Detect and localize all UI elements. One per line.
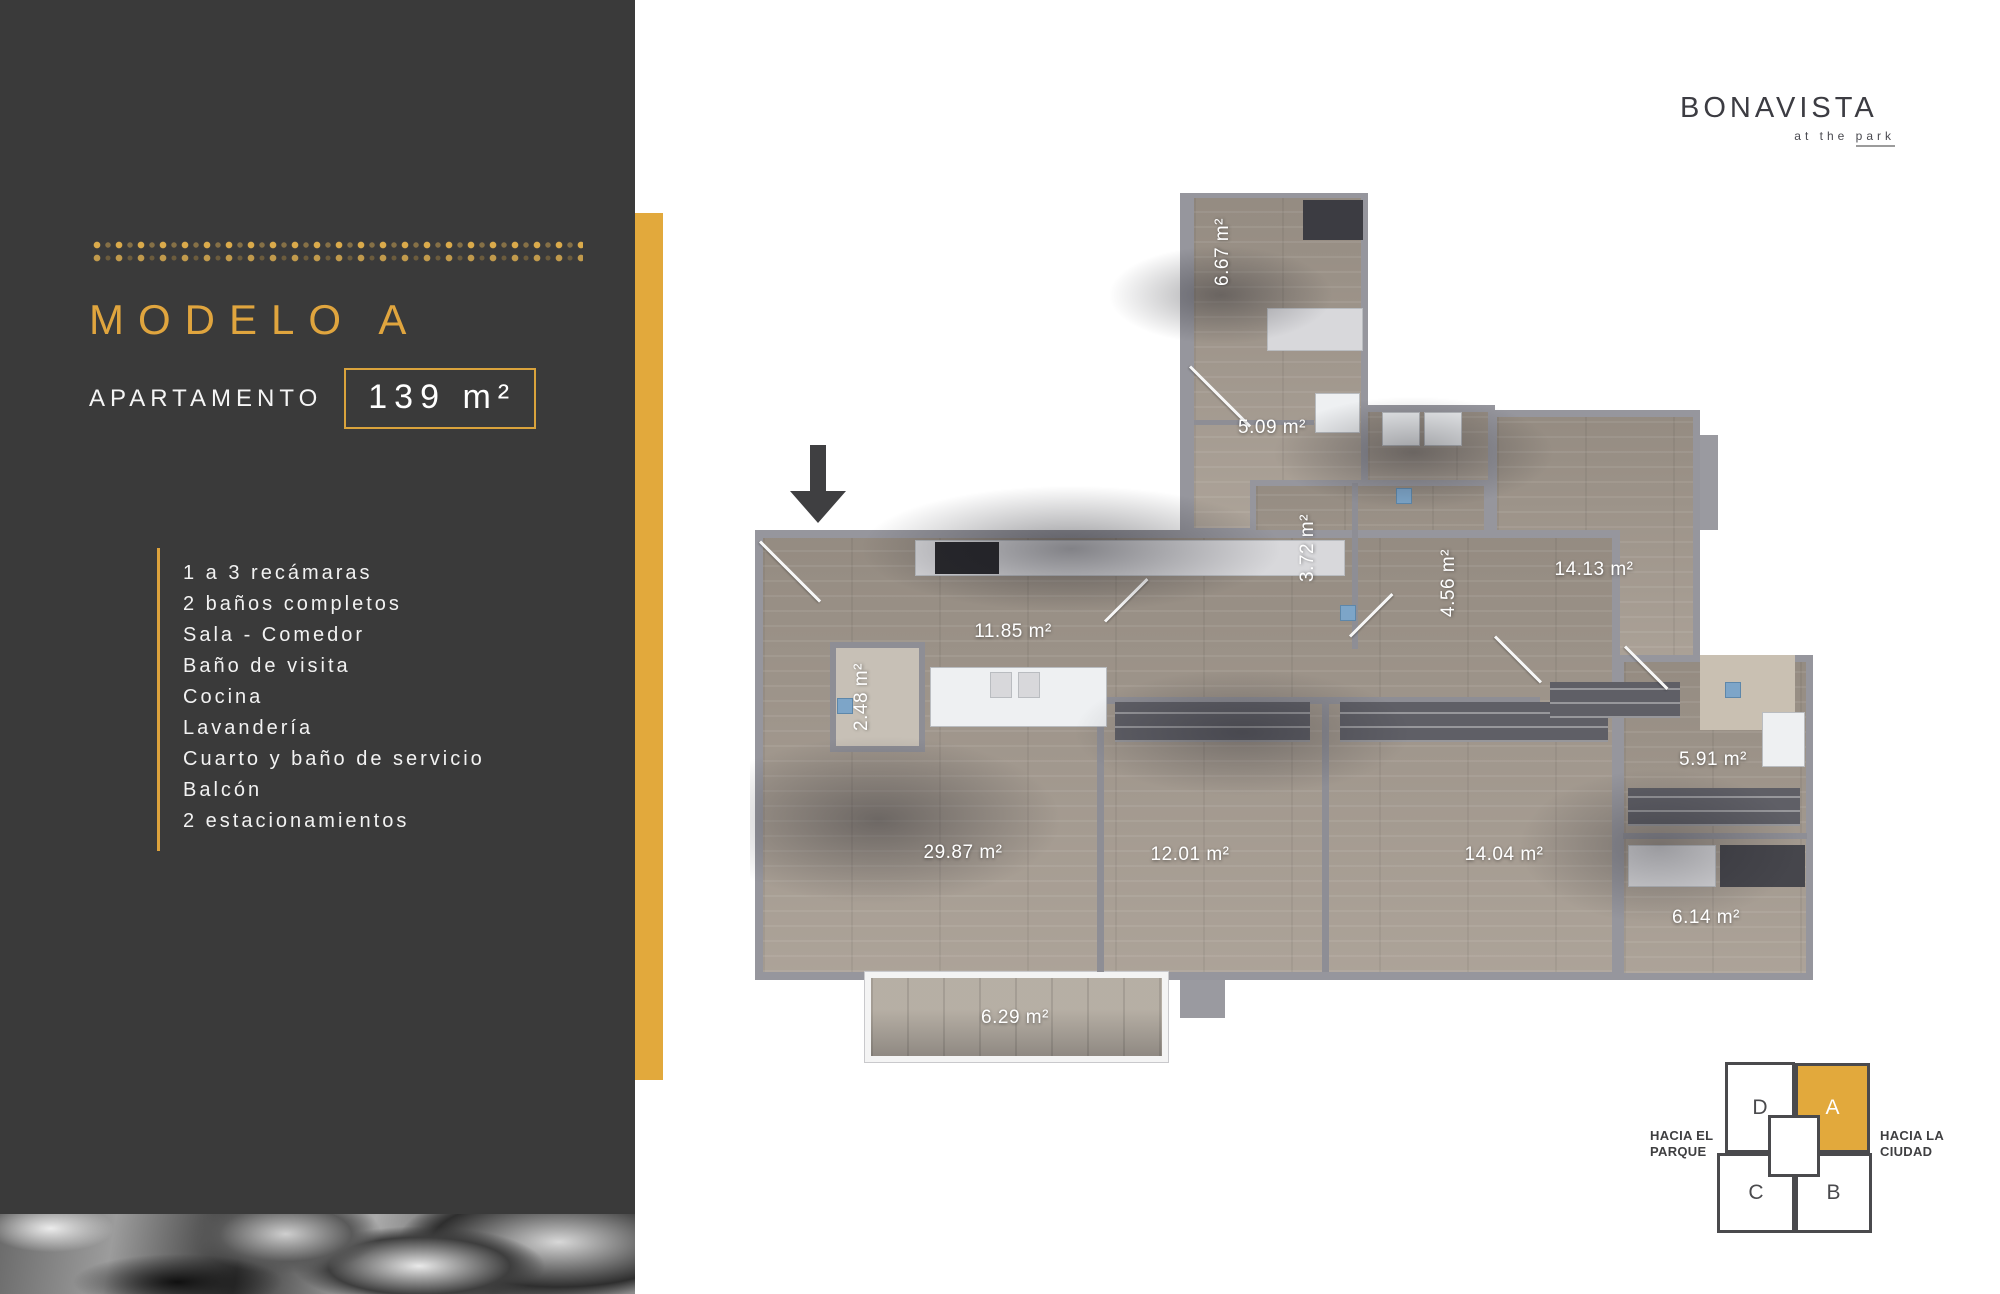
location-minimap: HACIA EL PARQUE HACIA LA CIUDAD D A C B bbox=[1640, 1055, 1950, 1240]
room-area-label-kitchen: 11.85 m² bbox=[974, 621, 1052, 643]
wall-living-bedroom bbox=[1097, 700, 1104, 972]
flyer-page: MODELO A APARTAMENTO 139 m² 1 a 3 recáma… bbox=[0, 0, 2000, 1294]
room-area-label-balcony: 6.29 m² bbox=[981, 1007, 1049, 1029]
marble-texture-image bbox=[0, 1214, 635, 1294]
closet-bedroom-3 bbox=[1115, 702, 1310, 742]
room-area-label-service-room: 5.09 m² bbox=[1238, 417, 1306, 439]
tower-closet bbox=[1303, 200, 1363, 240]
exterior-step bbox=[1180, 980, 1225, 1018]
unit-label: B bbox=[1826, 1181, 1840, 1205]
room-area-label-master-bedroom: 14.04 m² bbox=[1465, 844, 1544, 866]
washer-icon bbox=[1382, 412, 1420, 446]
unit-label: D bbox=[1752, 1096, 1767, 1120]
sidebar: MODELO A APARTAMENTO 139 m² 1 a 3 recáma… bbox=[0, 0, 635, 1215]
exterior-ledge bbox=[1700, 435, 1718, 530]
page-title: MODELO A bbox=[89, 296, 420, 344]
laundry-counter bbox=[1267, 308, 1363, 351]
service-appliance bbox=[1315, 393, 1360, 433]
floor-section-main-body bbox=[755, 530, 1620, 980]
feature-item: Cocina bbox=[183, 682, 485, 713]
guest-bath-room bbox=[830, 642, 925, 752]
brand-name: BONAVISTA bbox=[1680, 92, 1895, 125]
room-area-label-bath-2: 4.56 m² bbox=[1438, 549, 1460, 617]
feature-item: Balcón bbox=[183, 775, 485, 806]
walk-in-closet bbox=[1628, 788, 1800, 826]
floor-plan: 6.67 m² 5.09 m² 3.72 m² 4.56 m² 14.13 m²… bbox=[750, 190, 1820, 1065]
closet-bedroom-2 bbox=[1550, 682, 1680, 718]
wall-closet-bath bbox=[1623, 833, 1807, 839]
cooktop-icon bbox=[935, 542, 999, 574]
dots-pattern-decoration bbox=[91, 238, 583, 266]
wing-appliance bbox=[1762, 712, 1805, 767]
brand-tagline: at the park bbox=[1680, 129, 1895, 143]
feature-item: 1 a 3 recámaras bbox=[183, 558, 485, 589]
room-area-label-guest-bath: 2.48 m² bbox=[851, 663, 873, 731]
sink-icon bbox=[1396, 488, 1412, 504]
sink-icon bbox=[1340, 605, 1356, 621]
island-sink bbox=[1018, 672, 1040, 698]
sink-icon bbox=[1725, 682, 1741, 698]
brand-logo: BONAVISTA at the park bbox=[1680, 92, 1895, 143]
feature-item: 2 estacionamientos bbox=[183, 806, 485, 837]
bath-vanity bbox=[1720, 845, 1805, 887]
entry-arrow-icon bbox=[790, 445, 846, 525]
room-area-label-service-bath: 3.72 m² bbox=[1297, 514, 1319, 582]
feature-item: Cuarto y baño de servicio bbox=[183, 744, 485, 775]
room-area-label-master-bath: 6.14 m² bbox=[1672, 907, 1740, 929]
wall-bath-divider bbox=[1352, 483, 1358, 649]
minimap-right-label: HACIA LA CIUDAD bbox=[1880, 1128, 1964, 1160]
total-area-badge: 139 m² bbox=[344, 368, 536, 429]
room-area-label-laundry: 6.67 m² bbox=[1212, 218, 1234, 286]
room-area-label-bedroom-3: 12.01 m² bbox=[1151, 844, 1230, 866]
room-area-label-living-dining: 29.87 m² bbox=[924, 842, 1003, 864]
unit-label: A bbox=[1825, 1096, 1839, 1120]
minimap-core bbox=[1768, 1115, 1820, 1177]
tagline-prefix: at the bbox=[1794, 129, 1848, 143]
bathtub-icon bbox=[1628, 845, 1716, 887]
island-sink bbox=[990, 672, 1012, 698]
tagline-underlined-word: park bbox=[1856, 129, 1895, 147]
gold-accent-bar bbox=[635, 213, 663, 1080]
dryer-icon bbox=[1424, 412, 1462, 446]
feature-item: Sala - Comedor bbox=[183, 620, 485, 651]
feature-item: Lavandería bbox=[183, 713, 485, 744]
room-area-label-bedroom-2: 14.13 m² bbox=[1555, 559, 1634, 581]
arrow-stem bbox=[810, 445, 826, 493]
wall-bedroom-bedroom bbox=[1322, 700, 1329, 972]
arrow-head bbox=[790, 491, 846, 523]
room-area-label-closet: 5.91 m² bbox=[1679, 749, 1747, 771]
feature-item: 2 baños completos bbox=[183, 589, 485, 620]
subtitle-row: APARTAMENTO 139 m² bbox=[89, 368, 536, 429]
features-list: 1 a 3 recámaras 2 baños completos Sala -… bbox=[157, 548, 485, 851]
apartment-label: APARTAMENTO bbox=[89, 385, 322, 413]
feature-item: Baño de visita bbox=[183, 651, 485, 682]
unit-label: C bbox=[1748, 1181, 1763, 1205]
